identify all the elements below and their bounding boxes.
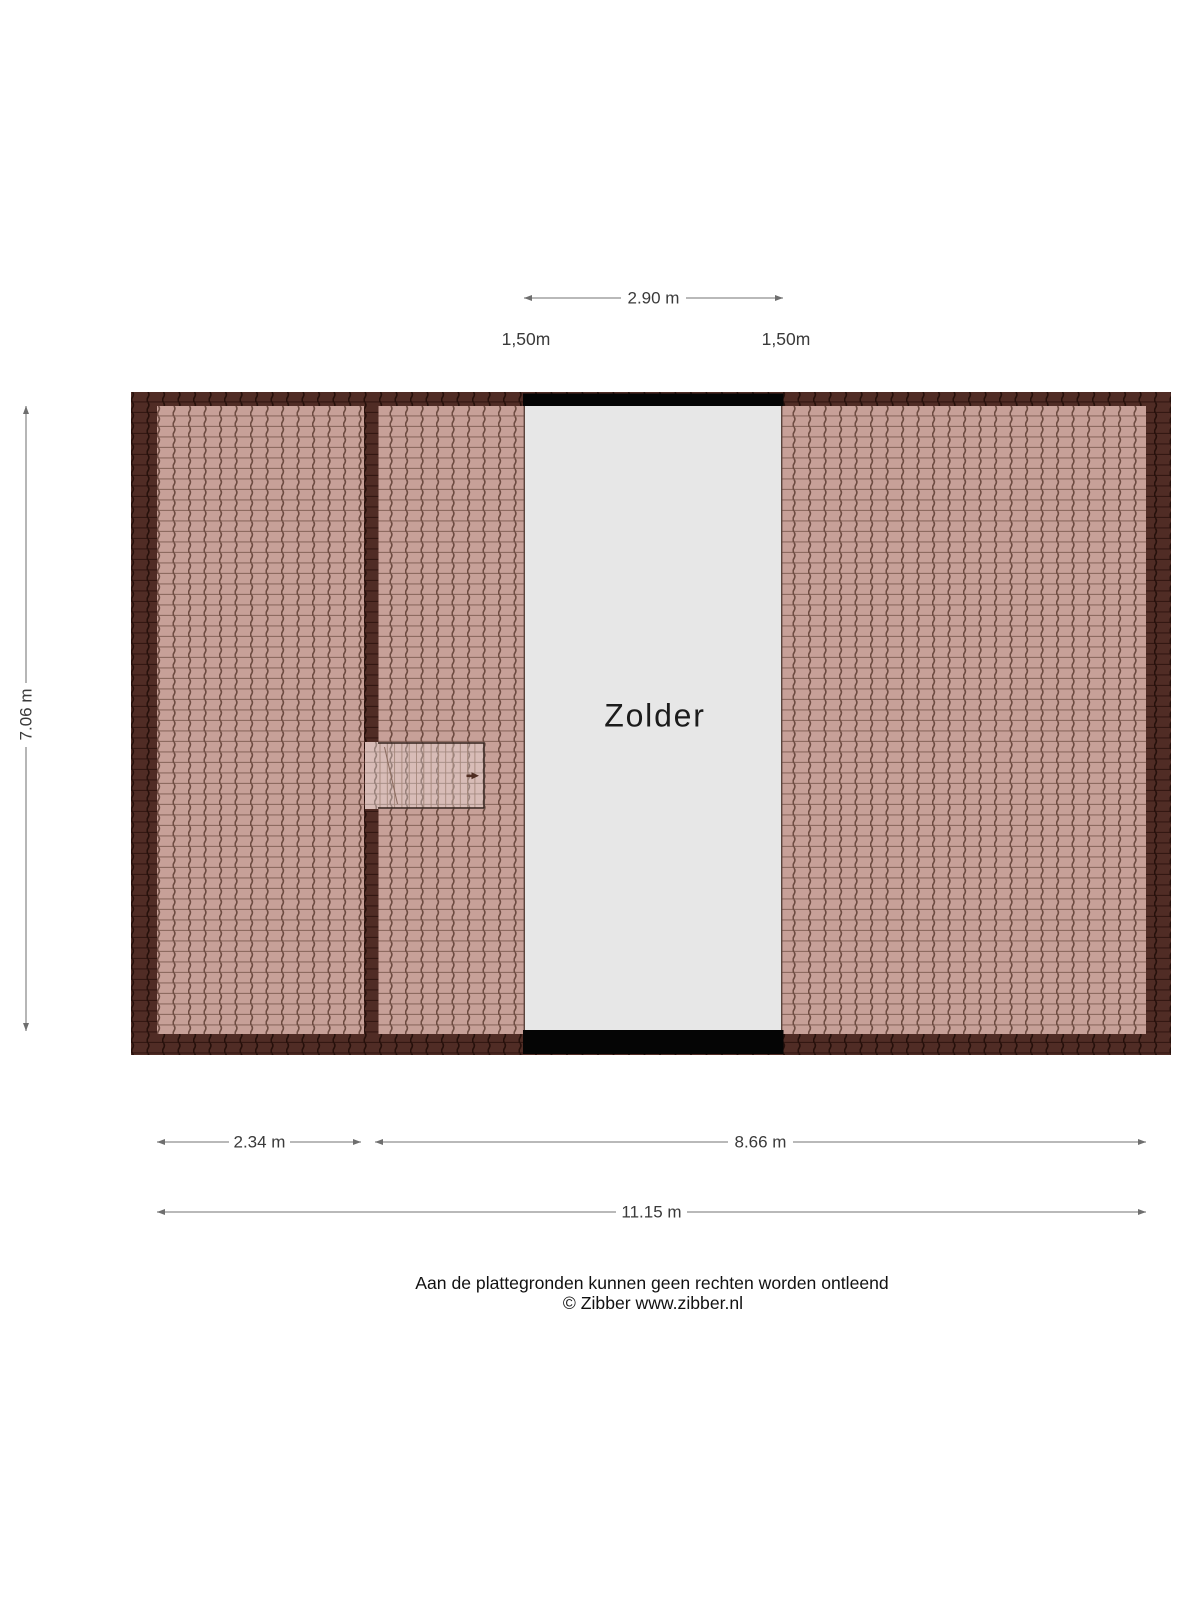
svg-text:2.90 m: 2.90 m xyxy=(628,289,680,308)
svg-text:11.15 m: 11.15 m xyxy=(621,1203,681,1222)
svg-text:7.06 m: 7.06 m xyxy=(17,689,36,741)
svg-text:8.66 m: 8.66 m xyxy=(735,1133,787,1152)
svg-text:© Zibber www.zibber.nl: © Zibber www.zibber.nl xyxy=(563,1293,743,1313)
svg-text:1,50m: 1,50m xyxy=(502,329,551,349)
svg-text:Aan de plattegronden kunnen ge: Aan de plattegronden kunnen geen rechten… xyxy=(415,1273,888,1293)
svg-text:2.34 m: 2.34 m xyxy=(234,1133,286,1152)
svg-text:Zolder: Zolder xyxy=(604,698,706,734)
svg-text:1,50m: 1,50m xyxy=(762,329,811,349)
